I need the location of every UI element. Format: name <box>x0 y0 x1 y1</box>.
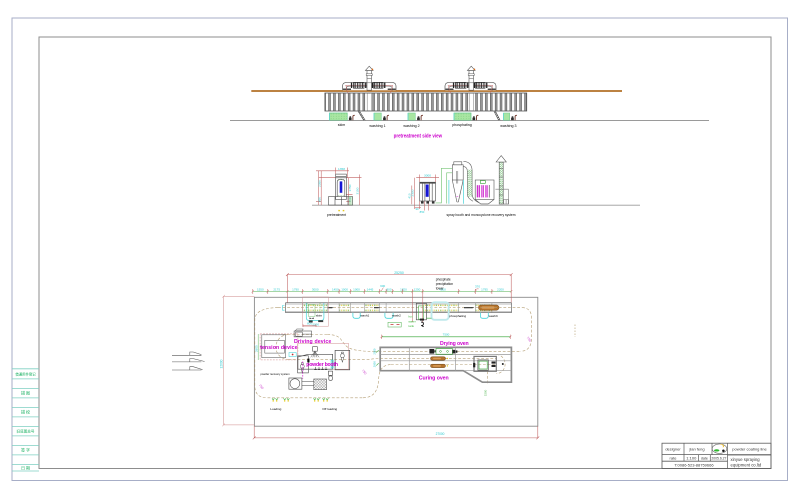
svg-text:hot: hot <box>408 315 412 319</box>
svg-text:wash2: wash2 <box>392 314 401 318</box>
svg-text:850: 850 <box>420 210 425 214</box>
svg-text:410: 410 <box>408 193 412 198</box>
svg-text:2200: 2200 <box>497 287 504 291</box>
svg-text:Driving device: Driving device <box>294 339 331 345</box>
svg-text:12000: 12000 <box>220 359 224 368</box>
svg-text:powder booth: powder booth <box>306 362 338 368</box>
svg-text:370: 370 <box>475 285 480 289</box>
svg-text:jian feng: jian feng <box>688 446 704 451</box>
svg-text:1795: 1795 <box>481 287 488 291</box>
svg-text:phosphate: phosphate <box>436 278 451 282</box>
svg-text:spray booth and monocyclone re: spray booth and monocyclone recovery sys… <box>447 213 516 217</box>
svg-text:1:100: 1:100 <box>686 456 697 461</box>
svg-text:Loading: Loading <box>270 407 281 411</box>
svg-text:750: 750 <box>361 369 368 376</box>
svg-text:tower: tower <box>436 286 445 290</box>
svg-text:date: date <box>701 457 708 461</box>
svg-text:phosphating: phosphating <box>449 314 466 318</box>
svg-text:旧底图总号: 旧底图总号 <box>17 429 35 434</box>
svg-text:27000: 27000 <box>436 432 445 436</box>
svg-text:1450: 1450 <box>332 287 339 291</box>
svg-text:700: 700 <box>348 197 352 202</box>
svg-text:pretreatment side view: pretreatment side view <box>394 133 443 139</box>
svg-text:90: 90 <box>415 207 419 211</box>
svg-text:2005.6.27: 2005.6.27 <box>711 457 726 461</box>
svg-text:skim: skim <box>316 314 323 318</box>
svg-text:3000: 3000 <box>312 287 319 291</box>
svg-text:借通用件登记: 借通用件登记 <box>15 371 36 376</box>
svg-text:1445: 1445 <box>367 287 374 291</box>
svg-text:pretreatment: pretreatment <box>327 213 346 217</box>
svg-text:Curing oven: Curing oven <box>419 376 449 382</box>
svg-text:powder coating line: powder coating line <box>732 447 767 452</box>
svg-text:1500: 1500 <box>483 389 487 396</box>
svg-text:rate: rate <box>670 456 678 461</box>
svg-text:3150: 3150 <box>355 187 359 194</box>
svg-text:25250: 25250 <box>394 271 404 275</box>
svg-text:skim: skim <box>338 123 345 127</box>
svg-text:precipitation: precipitation <box>436 282 453 286</box>
svg-text:Off loading: Off loading <box>322 407 337 411</box>
svg-text:7500: 7500 <box>443 332 450 336</box>
svg-text:2175: 2175 <box>273 287 280 291</box>
svg-text:tension device: tension device <box>260 345 298 351</box>
svg-text:water: water <box>408 319 415 323</box>
svg-text:签 字: 签 字 <box>21 447 30 453</box>
svg-text:2800: 2800 <box>255 345 259 352</box>
svg-text:描 图: 描 图 <box>21 390 30 396</box>
svg-text:2000: 2000 <box>372 348 376 354</box>
svg-text:washing 2: washing 2 <box>403 124 419 128</box>
svg-text:Drying oven: Drying oven <box>440 341 469 347</box>
svg-text:1000: 1000 <box>341 287 348 291</box>
svg-text:800: 800 <box>386 287 391 291</box>
svg-text:wash3: wash3 <box>489 314 498 318</box>
svg-text:600: 600 <box>380 284 385 288</box>
svg-text:描 校: 描 校 <box>21 409 30 415</box>
svg-text:washing 3: washing 3 <box>500 124 516 128</box>
svg-text:3000: 3000 <box>424 174 431 178</box>
svg-text:equipment co.ltd: equipment co.ltd <box>731 462 762 467</box>
svg-text:1550: 1550 <box>257 287 264 291</box>
svg-text:xinyue spraying: xinyue spraying <box>731 457 761 462</box>
svg-text:1000: 1000 <box>353 287 360 291</box>
svg-text:T:0086-523-88759666: T:0086-523-88759666 <box>674 463 714 468</box>
svg-text:2000: 2000 <box>372 361 376 367</box>
svg-text:750: 750 <box>258 383 265 390</box>
svg-text:tank: tank <box>408 324 414 328</box>
svg-text:phosphating: phosphating <box>452 123 472 127</box>
svg-text:850: 850 <box>317 197 321 202</box>
svg-text:2350: 2350 <box>317 180 321 187</box>
svg-text:1790: 1790 <box>292 287 299 291</box>
svg-text:washing 1: washing 1 <box>369 124 385 128</box>
svg-text:1750: 1750 <box>348 184 352 191</box>
svg-text:wash1: wash1 <box>360 314 369 318</box>
svg-text:1700: 1700 <box>400 287 407 291</box>
svg-text:1250: 1250 <box>414 287 421 291</box>
svg-text:powder recovery system: powder recovery system <box>260 372 290 376</box>
svg-text:designer: designer <box>665 446 681 451</box>
svg-text:日 期: 日 期 <box>21 464 30 470</box>
svg-text:1358: 1358 <box>338 167 345 171</box>
svg-text:600: 600 <box>307 321 312 325</box>
